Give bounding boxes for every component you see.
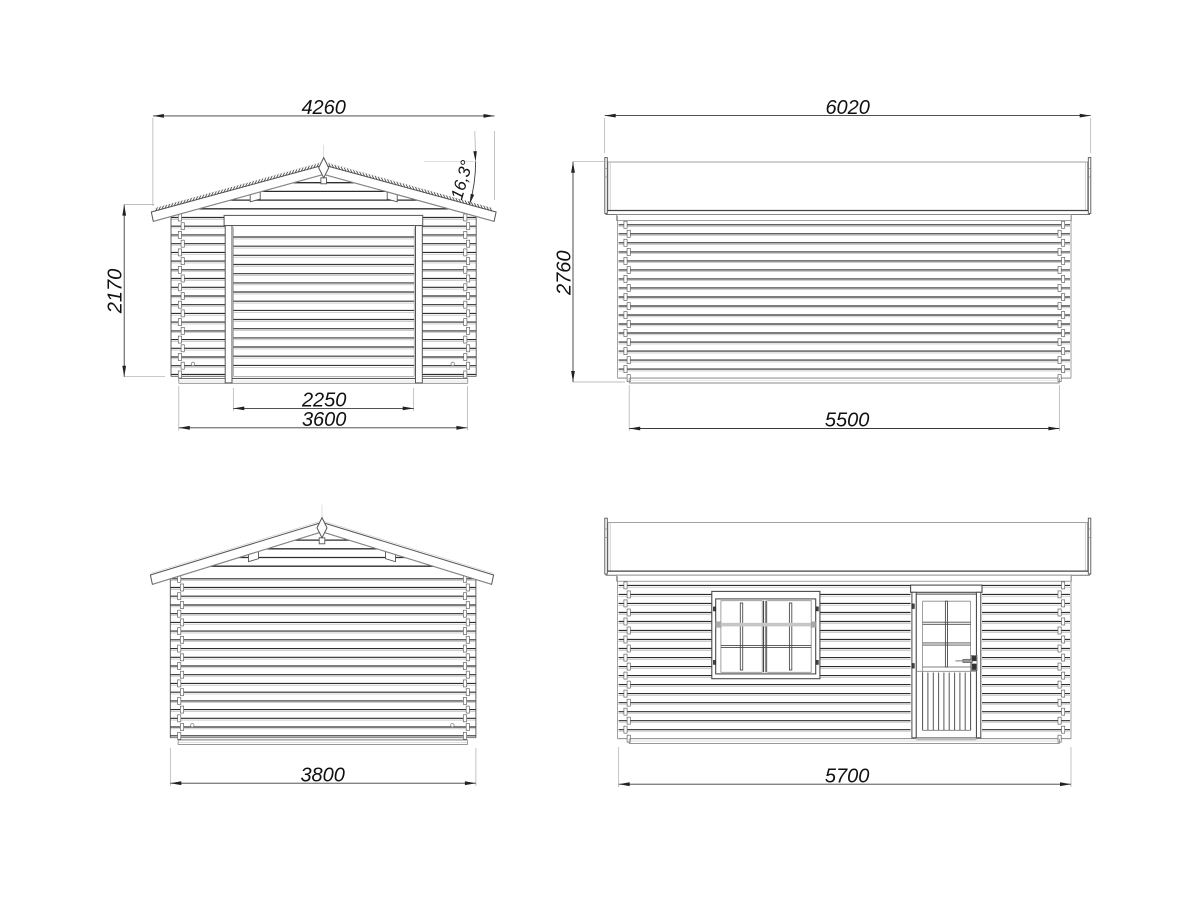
svg-text:5700: 5700 <box>825 765 870 787</box>
svg-text:6020: 6020 <box>825 97 870 119</box>
svg-text:2760: 2760 <box>554 251 576 297</box>
svg-text:2170: 2170 <box>105 269 127 315</box>
svg-text:5500: 5500 <box>825 410 870 432</box>
svg-text:4260: 4260 <box>301 97 346 119</box>
svg-text:3600: 3600 <box>302 409 347 431</box>
svg-text:3800: 3800 <box>300 764 345 786</box>
